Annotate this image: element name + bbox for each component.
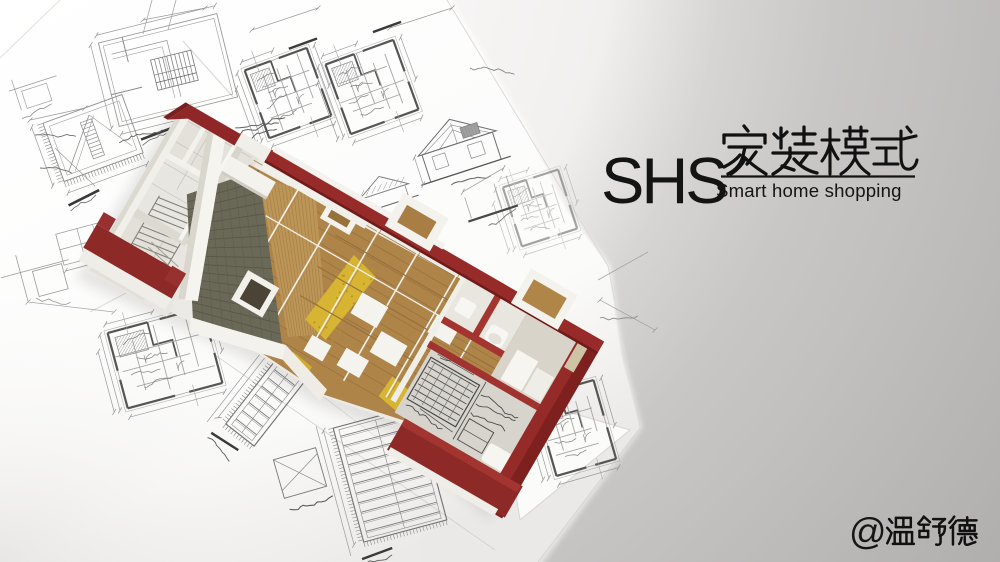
- svg-text:@: @: [849, 511, 887, 552]
- svg-text:SHS: SHS: [601, 144, 726, 217]
- svg-text:Smart home shopping: Smart home shopping: [716, 180, 902, 201]
